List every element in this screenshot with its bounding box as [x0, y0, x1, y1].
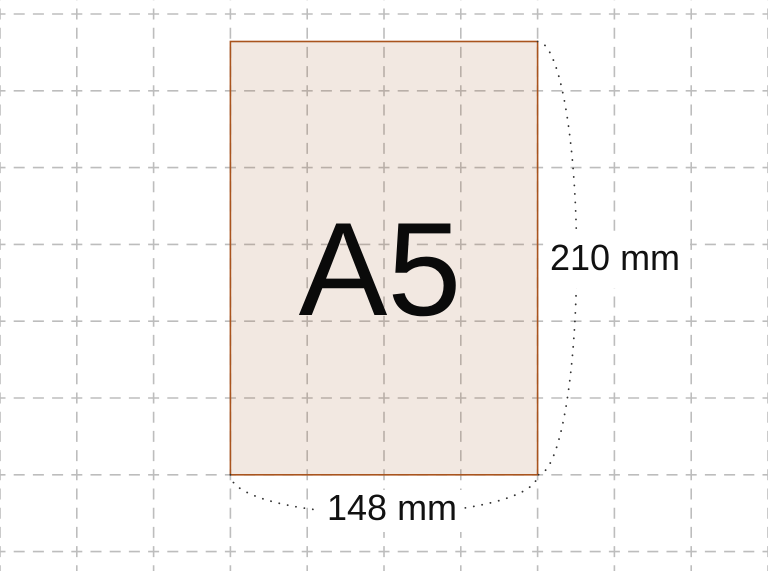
sheet-size-label: A5	[299, 196, 462, 344]
height-dimension-label: 210 mm	[550, 237, 680, 278]
paper-size-diagram: A5 210 mm 148 mm	[0, 0, 768, 571]
width-dimension-label: 148 mm	[327, 487, 457, 528]
diagram-canvas: A5 210 mm 148 mm	[0, 0, 768, 571]
